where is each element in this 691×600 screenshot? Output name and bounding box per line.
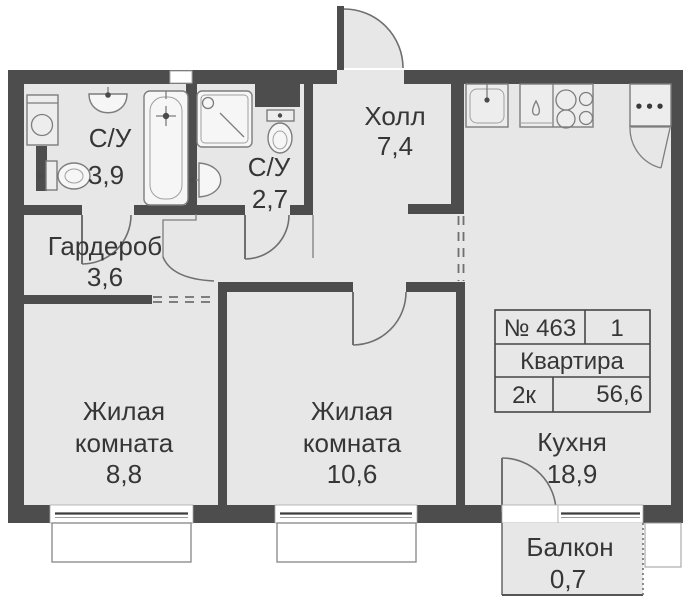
room-label-balcony: Балкон [526,532,613,562]
entrance-door-leaf [337,6,344,70]
layout-code: 2к [512,382,536,409]
window-ledge-1 [52,523,191,562]
room-area-bathroom-large: 3,9 [88,160,124,190]
room-area-hall: 7,4 [377,131,413,161]
room-label-living-1-line2: комната [75,428,174,458]
dots-icon: ••• [634,98,666,116]
stove-icon [520,84,593,128]
kitchen-sink-icon [466,84,508,127]
toilet-icon-2 [267,110,294,153]
room-label-living-1: Жилая [83,396,165,426]
wall-seam-notch [170,71,192,83]
room-area-living-2: 10,6 [327,459,378,489]
bathtub-icon [144,91,188,205]
room-area-wardrobe: 3,6 [87,262,123,292]
toilet-partition-stub-2 [255,84,300,107]
floor-plan: ••• № 463 1 Квартира 2к 56,6 С/У 3,9 С/У… [0,0,691,600]
unit-number: № 463 [504,315,576,342]
room-area-kitchen: 18,9 [547,459,598,489]
unit-type: Квартира [520,348,624,375]
neighbor-balcony-box [645,523,681,567]
room-label-bathroom-small: С/У [248,152,291,182]
washing-machine-icon [27,95,58,145]
room-label-hall: Холл [364,101,425,131]
room-area-living-1: 8,8 [106,459,142,489]
balcony-door-gap [502,505,558,523]
entrance-swing-area [344,9,403,68]
entrance-number: 1 [610,315,623,342]
room-label-living-2-line2: комната [303,428,402,458]
room-label-wardrobe: Гардероб [48,231,162,261]
total-area: 56,6 [596,381,643,408]
room-label-kitchen: Кухня [537,427,607,457]
shower-icon [197,91,252,147]
toilet-icon [38,161,90,190]
room-area-balcony: 0,7 [550,564,586,594]
floor-plan-canvas: ••• № 463 1 Квартира 2к 56,6 С/У 3,9 С/У… [0,0,691,600]
window-ledge-2 [277,523,416,562]
room-label-bathroom-large: С/У [89,123,132,153]
room-label-living-2: Жилая [311,396,393,426]
room-area-bathroom-small: 2,7 [252,184,288,214]
